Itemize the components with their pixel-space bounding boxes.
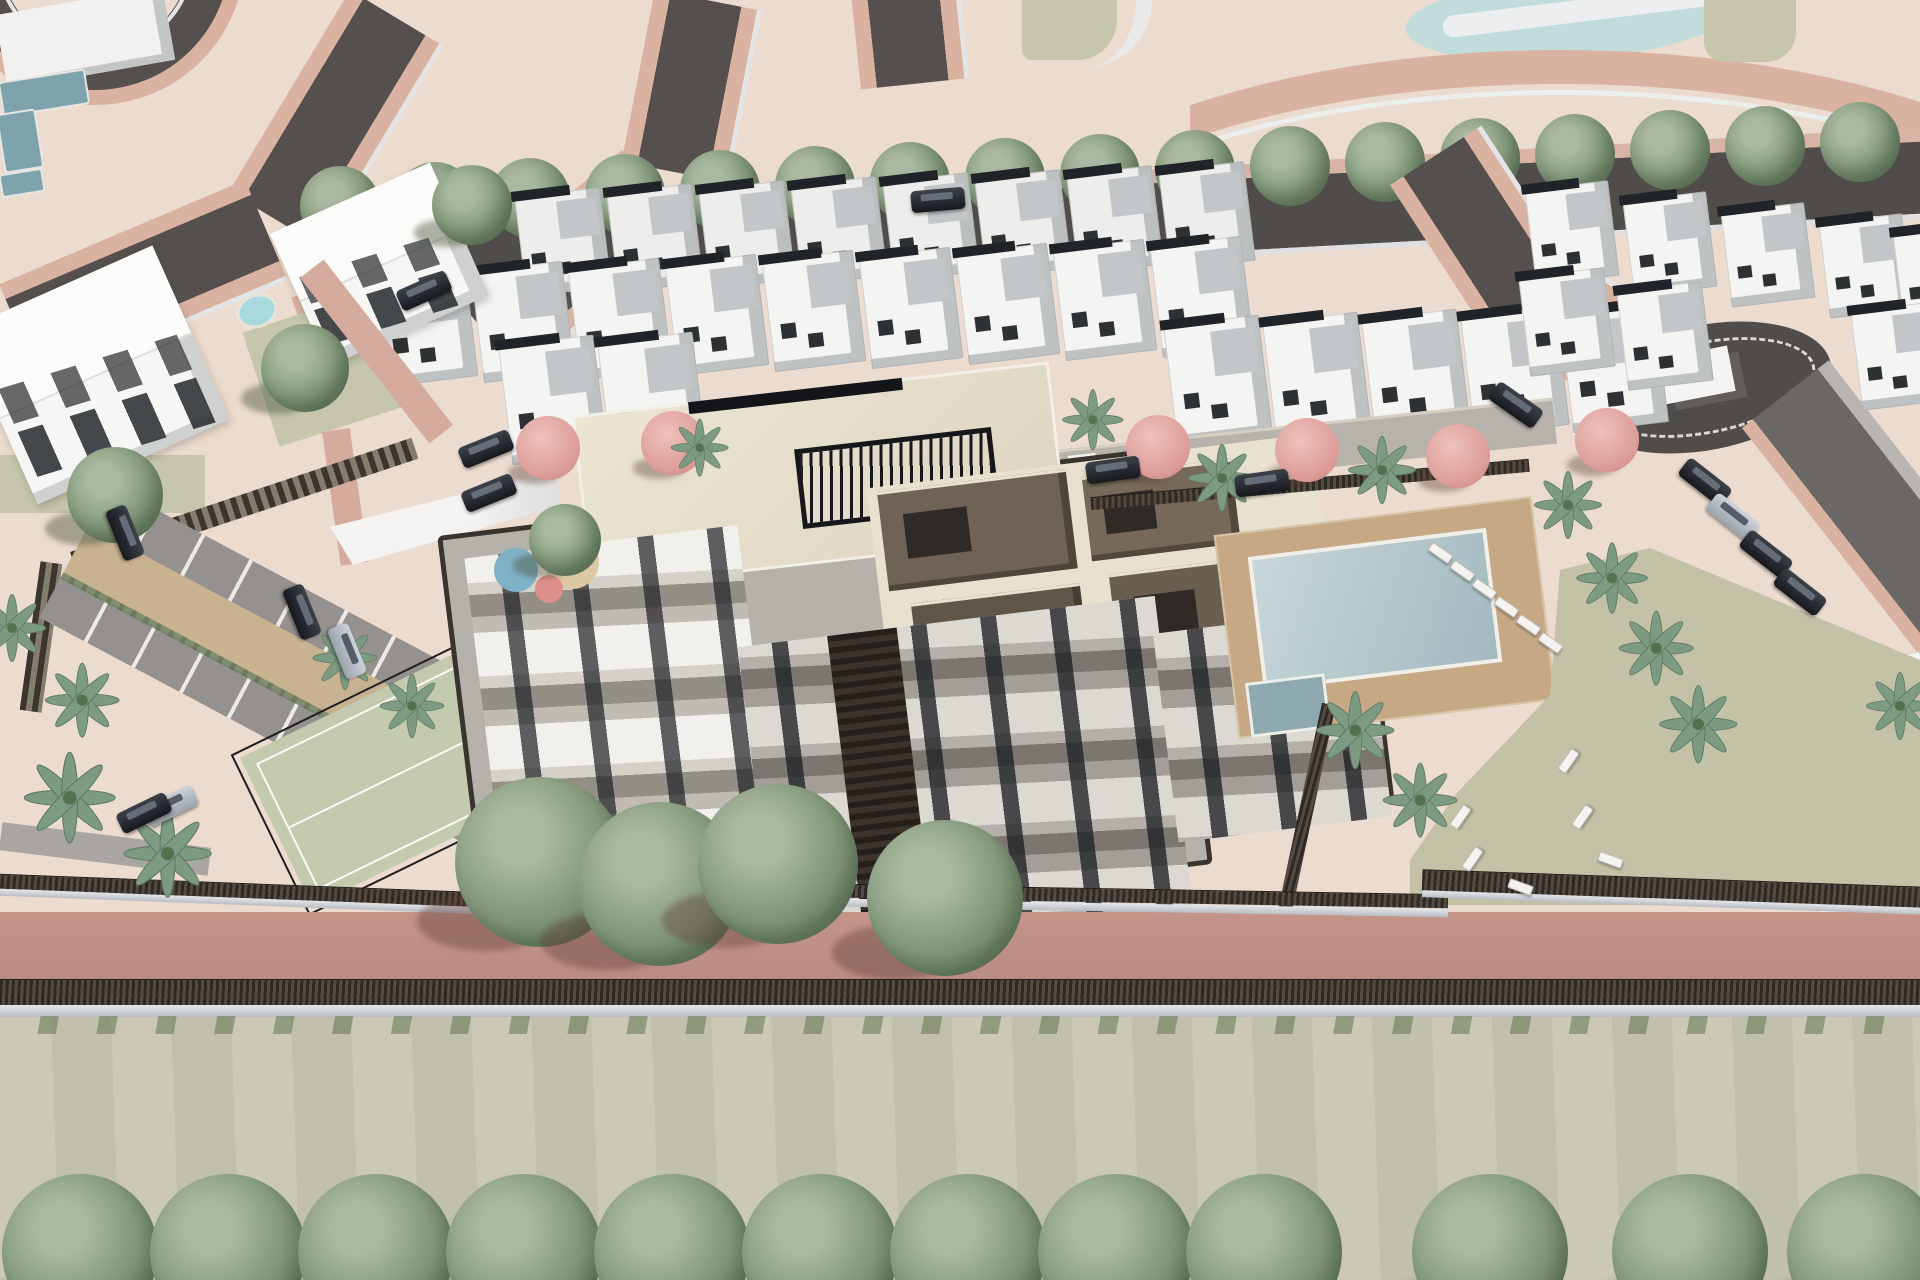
villa-window — [586, 330, 602, 346]
palm-tree-icon — [1610, 602, 1702, 694]
villa-unit — [1518, 267, 1616, 377]
villa-window — [1716, 695, 1737, 713]
villa-window — [1002, 325, 1018, 340]
b1-window-row-upper — [0, 335, 191, 424]
villa-unit — [1460, 306, 1570, 437]
pink-tree-icon — [1275, 418, 1339, 482]
villa-window — [614, 340, 630, 355]
tree-shadow — [45, 512, 122, 546]
villa-window — [808, 333, 824, 348]
main-boundary-wall — [0, 1005, 1920, 1017]
front-sidewalk-pink — [0, 912, 1920, 984]
sun-lounger — [1471, 578, 1497, 601]
tree-icon — [490, 158, 570, 238]
villa-window — [546, 423, 563, 439]
villa-window — [1168, 308, 1184, 324]
tree-icon — [455, 777, 625, 947]
villa-window — [1536, 332, 1551, 347]
access-street-a — [1390, 125, 1608, 378]
west-boundary-wall-lower — [20, 561, 63, 713]
pond — [1402, 0, 1737, 71]
vehicles-layer — [0, 0, 1920, 1280]
sun-lounger — [1597, 851, 1624, 869]
white-path-curve — [1062, 0, 1152, 68]
palm-tree-icon — [113, 799, 222, 908]
building-east-facade — [1153, 608, 1392, 843]
plot-pool — [0, 108, 44, 174]
villa-window — [1659, 355, 1674, 369]
villa-unit — [498, 335, 608, 466]
pink-arc-road — [1190, 50, 1920, 178]
playground-blue-circle — [494, 548, 538, 592]
roof-pergola — [794, 427, 1000, 529]
sweep-road-lower — [0, 180, 288, 386]
villa-window — [518, 412, 535, 429]
inner-boundary-wall-west — [0, 889, 645, 921]
pink-tree-icon — [641, 411, 705, 475]
tree-icon — [432, 165, 512, 245]
villa-window — [1480, 383, 1497, 400]
south-bands-layer — [0, 0, 1920, 1280]
villa-window — [711, 336, 727, 351]
pink-arc-curb — [1190, 90, 1920, 178]
villa-unit — [956, 243, 1061, 365]
tree-icon — [1060, 134, 1140, 214]
villa-unit — [1262, 312, 1372, 443]
tree-icon — [150, 1174, 306, 1280]
villa-window — [1860, 284, 1875, 297]
villa-window — [974, 315, 990, 331]
villa-unit — [1053, 239, 1158, 361]
sun-lounger — [1537, 632, 1563, 655]
villa-unit — [514, 187, 612, 297]
palm-tree-icon — [1858, 664, 1920, 748]
villa-unit — [471, 261, 576, 383]
parked-car — [1677, 457, 1733, 508]
villa-window — [645, 420, 662, 436]
west-boundary-wall-upper — [70, 438, 418, 573]
villa-window — [1211, 403, 1228, 419]
villa-window — [392, 337, 408, 353]
pink-tree-icon — [516, 416, 580, 480]
apartment-block-b1 — [0, 246, 230, 505]
palm-tree-icon — [0, 586, 54, 670]
villa-window — [1084, 230, 1099, 245]
villa-window — [1099, 322, 1115, 337]
villa-unit — [1850, 301, 1920, 411]
kidney-pool — [231, 288, 282, 334]
tree-icon — [1820, 102, 1900, 182]
hairpin-road-asphalt — [0, 0, 230, 90]
spa-pool — [1245, 673, 1331, 737]
tree-icon — [585, 154, 665, 234]
parked-car — [282, 583, 323, 641]
villa-window — [1664, 262, 1679, 275]
east-lawn — [1400, 545, 1920, 910]
villa-unit — [1066, 165, 1164, 275]
tree-icon — [870, 142, 950, 222]
villa-window — [808, 241, 823, 256]
parked-car — [1705, 492, 1761, 543]
building-east-terrace — [866, 434, 1343, 737]
villa-window — [1109, 239, 1124, 253]
tree-icon — [1186, 1174, 1342, 1280]
tree-icon — [1787, 1174, 1920, 1280]
b1-window-row — [17, 378, 215, 478]
villa-window — [1879, 739, 1900, 756]
building-west-tower — [464, 525, 794, 1025]
villa-window — [532, 252, 547, 267]
building-roof-deck — [572, 361, 1069, 589]
sage-patch-b1 — [243, 293, 402, 447]
penthouse-volume-3 — [911, 583, 1091, 693]
villa-window — [624, 249, 639, 264]
villa-window — [1071, 312, 1087, 328]
hairpin-road-edge — [0, 0, 245, 105]
villa-window — [1607, 391, 1624, 407]
villa-window — [1196, 318, 1212, 333]
parked-car — [457, 429, 515, 470]
villa-unit — [1163, 315, 1273, 446]
pink-tree-icon — [1126, 415, 1190, 479]
villa-window — [1751, 703, 1772, 720]
pink-tree-icon — [1575, 408, 1639, 472]
sun-lounger — [1557, 748, 1580, 774]
east-parking-street — [1742, 360, 1920, 688]
tree-icon — [1345, 122, 1425, 202]
villa-window — [1017, 243, 1032, 257]
palm-tree-icon — [664, 412, 735, 483]
villa-unit — [1819, 649, 1920, 785]
parking-lot — [40, 485, 570, 862]
parked-car — [1085, 455, 1142, 484]
tree-shadow — [417, 892, 553, 952]
north-road-a2 — [452, 150, 693, 377]
palm-tree-icon — [1650, 676, 1747, 773]
tree-icon — [742, 1174, 898, 1280]
villa-unit — [1158, 161, 1256, 271]
sun-lounger — [1449, 804, 1472, 830]
villa-window — [1694, 835, 1715, 853]
pink-tree-shadow — [1418, 470, 1470, 492]
tree-icon — [578, 802, 742, 966]
north-road-b — [850, 0, 970, 89]
building-dark-core — [827, 628, 944, 1024]
tree-icon — [1630, 110, 1710, 190]
parking-stalls-south — [40, 577, 521, 862]
villa-window — [683, 326, 699, 342]
palm-tree-icon — [13, 741, 126, 854]
building-east-hedge — [1278, 703, 1335, 911]
tree-shadow — [832, 925, 957, 980]
north-road-a1 — [622, 0, 763, 183]
villa-window — [992, 234, 1007, 249]
pink-tree-shadow — [633, 457, 685, 479]
villa-window — [1579, 380, 1596, 397]
villa-unit — [606, 183, 704, 293]
pink-walk-b — [322, 428, 369, 566]
villa-unit — [1559, 303, 1669, 434]
villa-window — [1282, 389, 1299, 406]
villa-unit — [1616, 281, 1714, 391]
tree-icon — [2, 1174, 158, 1280]
villa-unit — [762, 250, 867, 372]
villa-window — [649, 258, 664, 272]
main-pool — [1248, 528, 1503, 691]
villa-window — [1844, 731, 1865, 749]
tree-icon — [1535, 114, 1615, 194]
villa-window — [1541, 243, 1556, 257]
pink-tree-shadow — [1118, 461, 1170, 483]
inner-boundary-wall-east — [1422, 890, 1920, 915]
building-front-hedge-b — [920, 955, 1247, 1032]
b2-window-row — [314, 265, 478, 345]
villa-window — [741, 254, 756, 268]
parked-car — [1738, 529, 1794, 580]
pink-tree-shadow — [508, 462, 560, 484]
parking-stalls-north — [88, 485, 569, 770]
villa-unit — [790, 176, 888, 286]
sun-lounger — [1493, 596, 1519, 619]
pool-deck — [1214, 496, 1557, 738]
villa-roof-terrace — [0, 0, 175, 89]
tree-shadow — [241, 383, 311, 414]
junction-pink-patch — [291, 243, 469, 373]
hairpin-road-clip — [0, 0, 260, 115]
culdesac-dashed-ring — [1587, 321, 1824, 455]
sage-patch-north — [1022, 0, 1117, 60]
palm-tree-icon — [1526, 463, 1610, 547]
sun-lounger — [1461, 846, 1484, 872]
villa-unit — [374, 265, 479, 387]
public-lawn — [0, 1014, 1920, 1280]
parked-car — [395, 270, 453, 312]
tree-icon — [1155, 130, 1235, 210]
villa-unit — [1691, 613, 1826, 749]
palm-tree-icon — [1055, 382, 1131, 458]
villa-window — [716, 245, 731, 260]
parked-car — [1488, 381, 1545, 430]
tree-icon — [261, 324, 349, 412]
pool-north-hedge — [1090, 459, 1529, 510]
parked-car — [327, 622, 368, 680]
b2-window-row-upper — [299, 232, 459, 304]
parked-car — [1772, 567, 1828, 618]
tennis-court — [240, 609, 618, 906]
villa-window — [877, 319, 893, 335]
street-tree-row-layer — [0, 0, 1920, 1280]
villa-unit — [1892, 223, 1920, 329]
palm-tree-icon — [1374, 754, 1466, 846]
tree-shadow — [414, 219, 478, 247]
pink-tree-shadow — [1267, 464, 1319, 486]
sun-lounger — [1571, 804, 1594, 830]
tree-icon — [446, 1174, 602, 1280]
tree-icon — [1612, 1174, 1768, 1280]
villa-window — [1828, 885, 1849, 903]
inner-boundary-hedge-east — [1422, 869, 1920, 909]
palm-tree-icon — [305, 618, 385, 698]
right-streets-layer — [0, 0, 1920, 1280]
pink-walk-a — [300, 260, 453, 444]
villa-unit — [597, 332, 707, 463]
render-canvas — [0, 0, 1920, 1280]
pond-path — [1442, 0, 1715, 38]
palm-tree-icon — [1307, 682, 1404, 779]
crosswalk — [1068, 453, 1100, 494]
villa-window — [1566, 251, 1581, 264]
villa-window — [1909, 286, 1920, 300]
boulevard-road — [325, 141, 1920, 299]
villa-unit — [698, 180, 796, 290]
access-street-b — [1505, 250, 1664, 405]
building-front-hedge-a — [600, 988, 850, 1032]
front-walk-layer — [0, 0, 1920, 1280]
tree-shadow — [662, 892, 790, 948]
sun-lounger — [1449, 560, 1475, 583]
villa-window — [1508, 394, 1525, 410]
tree-icon — [594, 1174, 750, 1280]
amenities-layer — [0, 0, 1920, 1280]
villa-unit — [1361, 309, 1471, 440]
tree-icon — [890, 1174, 1046, 1280]
hairpin-road-curb — [0, 0, 195, 55]
villa-window — [1863, 893, 1884, 910]
building-path-west — [437, 447, 1213, 953]
west-grey-walk — [0, 822, 211, 875]
villa-rows-south-east — [0, 0, 1920, 1280]
tree-icon — [395, 162, 475, 242]
villa-window — [1762, 273, 1777, 286]
tree-icon — [300, 166, 380, 246]
tree-icon — [1250, 126, 1330, 206]
tree-shadow — [513, 553, 571, 578]
parking-hedge-line — [60, 572, 522, 822]
tree-icon — [775, 146, 855, 226]
pool-furniture-layer — [0, 0, 1920, 1280]
sun-lounger — [1507, 878, 1534, 896]
tree-shadow — [541, 913, 672, 970]
main-boundary-hedge — [0, 979, 1920, 1007]
parked-car — [105, 504, 146, 562]
parked-car — [115, 791, 173, 834]
playground-red-circle — [535, 575, 563, 603]
inner-boundary-hedge-west — [0, 874, 645, 914]
court-net-line — [287, 688, 572, 828]
sage-strip-west — [0, 455, 205, 513]
parked-car — [141, 784, 199, 827]
villa-unit — [1150, 235, 1255, 357]
parked-car — [460, 473, 518, 514]
villa-window — [1183, 392, 1200, 409]
pool-street — [1055, 398, 1557, 496]
palm-tree-icon — [1568, 534, 1656, 622]
tree-icon — [1725, 106, 1805, 186]
playground-sand-circle — [545, 535, 599, 589]
villa-window — [905, 329, 921, 344]
tree-icon — [1440, 118, 1520, 198]
villa-window — [1176, 226, 1191, 241]
villa-window — [1835, 276, 1850, 290]
culdesac-center-building — [1656, 346, 1735, 405]
apartment-block-b2 — [270, 163, 489, 367]
tree-icon — [680, 150, 760, 230]
villa-unit — [974, 169, 1072, 279]
vegetation-layer — [0, 0, 1920, 1280]
villa-unit — [1803, 803, 1920, 939]
villa-window — [517, 344, 533, 359]
building-south-block — [738, 596, 1202, 1034]
tree-icon — [1412, 1174, 1568, 1280]
villa-unit — [568, 257, 673, 379]
plot-pool — [0, 168, 46, 199]
villa-window — [1634, 346, 1649, 361]
penthouse-volume-2 — [1082, 459, 1241, 562]
villa-window — [1639, 254, 1654, 268]
villa-window — [1737, 265, 1752, 279]
villa-unit — [1720, 202, 1815, 308]
villa-window — [925, 246, 940, 260]
palm-tree-icon — [36, 654, 128, 746]
villa-unit — [1524, 180, 1619, 286]
villa-window — [900, 238, 915, 253]
villa-window — [557, 261, 572, 275]
boulevard-tree-row — [0, 0, 1920, 1280]
palm-tree-icon — [1180, 436, 1264, 520]
sun-lounger — [1427, 542, 1453, 565]
culdesac-loop — [1568, 302, 1842, 473]
villa-window — [617, 409, 634, 426]
sun-lounger — [1515, 614, 1541, 637]
tree-icon — [965, 138, 1045, 218]
penthouse-volume-1 — [877, 469, 1078, 591]
penthouse-volume-4 — [1109, 553, 1300, 674]
tree-icon — [529, 504, 601, 576]
villa-window — [1409, 397, 1426, 413]
tree-icon — [1038, 1174, 1194, 1280]
villa-unit — [882, 172, 980, 282]
inner-boundary-wall-mid — [618, 895, 1448, 917]
villa-window — [489, 334, 505, 350]
villa-window — [780, 323, 796, 339]
tree-icon — [698, 784, 858, 944]
sage-patch-northeast — [1704, 0, 1796, 62]
left-blocks-layer — [0, 0, 1920, 1280]
villa-unit — [1669, 753, 1804, 889]
plot-pool — [0, 68, 90, 117]
villa-window — [1893, 375, 1908, 389]
villa-unit — [859, 246, 964, 368]
villa-unit — [1818, 213, 1913, 319]
roof-railing-bar — [688, 378, 903, 414]
palm-tree-icon — [372, 666, 452, 746]
sweep-road-upper — [229, 0, 444, 248]
tree-icon — [867, 820, 1023, 976]
inner-boundary-hedge-mid — [618, 880, 1448, 908]
pink-arc-clip — [1190, 28, 1920, 178]
villa-window — [420, 348, 436, 363]
villa-window — [1310, 400, 1327, 416]
pink-tree-icon — [1426, 424, 1490, 488]
tree-icon — [67, 447, 163, 543]
villa-window — [1729, 843, 1750, 860]
ground-layer — [0, 0, 1920, 1280]
lawn-planting-dashes — [0, 1016, 1920, 1034]
building-path-east — [1125, 546, 1395, 833]
palm-tree-icon — [1340, 428, 1424, 512]
villa-window — [833, 250, 848, 264]
tree-icon — [298, 1174, 454, 1280]
